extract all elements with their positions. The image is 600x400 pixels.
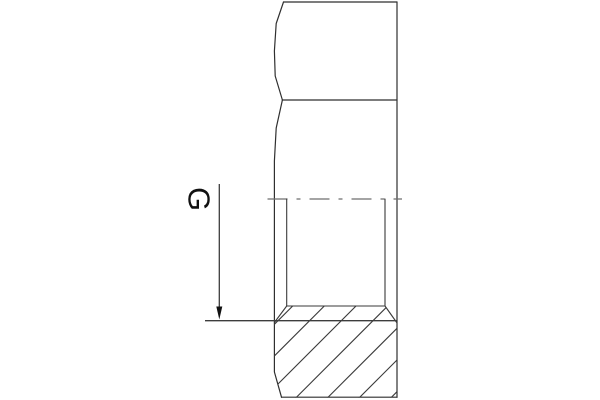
thread-leader xyxy=(205,184,397,321)
section-hatching xyxy=(199,300,489,400)
thread-bevel-right xyxy=(385,306,397,323)
fitting-section-drawing: G xyxy=(0,0,600,400)
hatch-line xyxy=(325,300,425,400)
hatch-line xyxy=(199,300,299,400)
bore-section xyxy=(274,199,396,323)
hatch-line xyxy=(357,300,457,400)
leader-arrowhead-icon xyxy=(216,307,222,320)
hatch-line xyxy=(389,300,489,400)
hatch-line xyxy=(294,300,394,400)
technical-drawing-canvas: G xyxy=(0,0,600,400)
thread-size-label: G xyxy=(181,187,216,211)
outline-left-hex-corner-upper xyxy=(274,2,283,100)
hatch-line xyxy=(262,300,362,400)
